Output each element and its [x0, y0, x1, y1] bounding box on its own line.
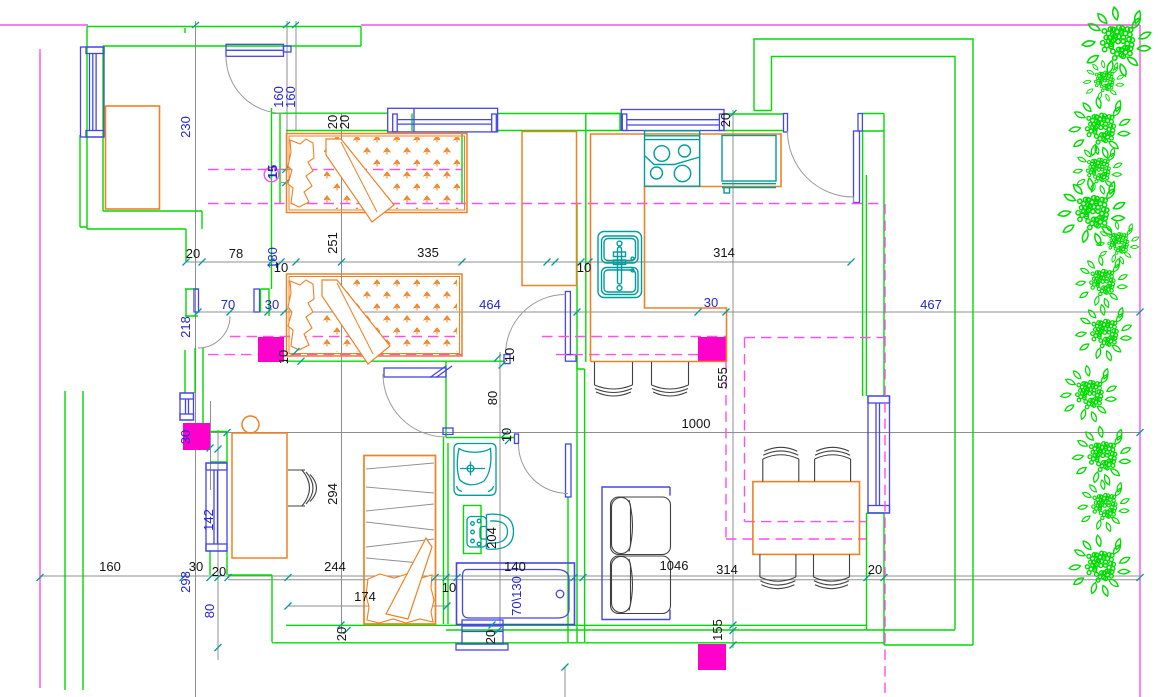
- svg-text:251: 251: [325, 232, 340, 254]
- svg-text:335: 335: [417, 245, 439, 260]
- svg-text:294: 294: [325, 483, 340, 505]
- svg-text:70: 70: [221, 297, 235, 312]
- svg-text:314: 314: [716, 562, 738, 577]
- svg-text:20: 20: [334, 627, 349, 641]
- svg-text:15: 15: [265, 165, 280, 179]
- svg-text:10: 10: [276, 350, 291, 364]
- svg-text:244: 244: [324, 559, 346, 574]
- svg-text:30: 30: [704, 295, 718, 310]
- svg-text:20: 20: [212, 564, 226, 579]
- svg-text:10: 10: [499, 428, 514, 442]
- svg-text:142: 142: [201, 509, 216, 531]
- svg-text:160: 160: [283, 86, 298, 108]
- svg-text:140: 140: [504, 559, 526, 574]
- svg-text:555: 555: [715, 367, 730, 389]
- svg-text:30: 30: [178, 430, 193, 444]
- svg-text:464: 464: [479, 297, 501, 312]
- svg-text:174: 174: [354, 589, 376, 604]
- svg-text:20: 20: [337, 115, 352, 129]
- svg-text:78: 78: [229, 246, 243, 261]
- svg-text:20: 20: [186, 246, 200, 261]
- svg-text:20: 20: [868, 562, 882, 577]
- svg-text:10: 10: [577, 260, 591, 275]
- svg-text:467: 467: [920, 297, 942, 312]
- svg-text:204: 204: [484, 527, 499, 549]
- svg-text:314: 314: [713, 245, 735, 260]
- svg-text:218: 218: [178, 316, 193, 338]
- svg-text:30: 30: [265, 297, 279, 312]
- svg-text:160: 160: [99, 559, 121, 574]
- svg-text:298: 298: [178, 571, 193, 593]
- svg-text:1000: 1000: [682, 416, 711, 431]
- svg-text:20: 20: [483, 630, 498, 644]
- svg-text:230: 230: [178, 116, 193, 138]
- svg-text:10: 10: [502, 348, 517, 362]
- svg-text:20: 20: [718, 113, 733, 127]
- svg-text:80: 80: [202, 604, 217, 618]
- svg-text:70\130: 70\130: [509, 576, 524, 616]
- svg-text:180: 180: [265, 247, 280, 269]
- svg-text:80: 80: [485, 391, 500, 405]
- svg-text:1046: 1046: [660, 558, 689, 573]
- svg-text:155: 155: [710, 619, 725, 641]
- svg-text:10: 10: [442, 580, 456, 595]
